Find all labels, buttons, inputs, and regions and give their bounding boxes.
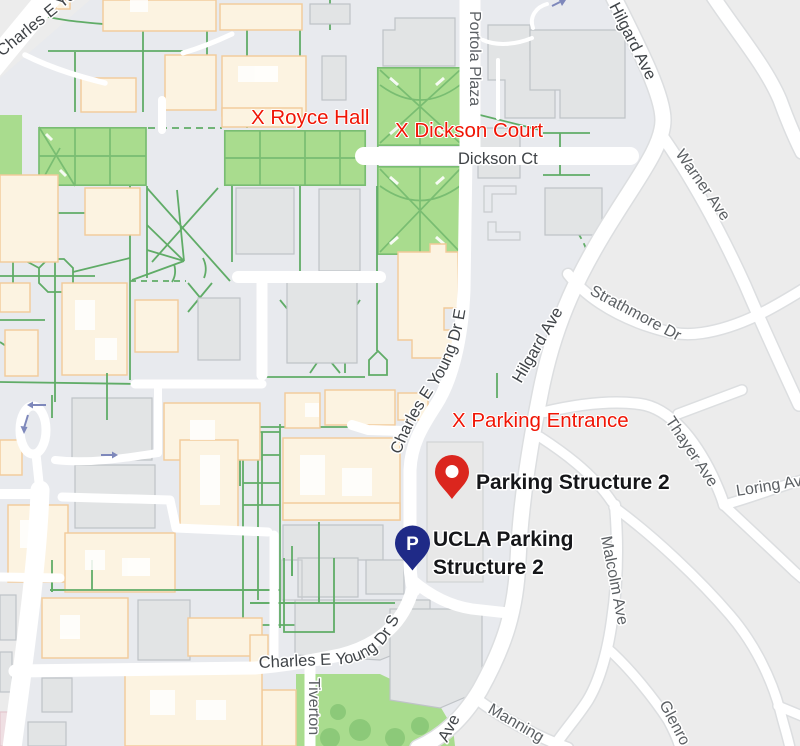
svg-text:Parking Structure 2: Parking Structure 2 [476, 471, 670, 494]
svg-text:X Dickson Court: X Dickson Court [395, 119, 543, 142]
svg-text:X Royce Hall: X Royce Hall [251, 106, 370, 129]
svg-text:Tiverton: Tiverton [305, 678, 322, 735]
svg-text:Portola Plaza: Portola Plaza [466, 11, 483, 106]
svg-text:X Parking Entrance: X Parking Entrance [452, 409, 629, 432]
svg-text:UCLA Parking: UCLA Parking [433, 528, 573, 551]
svg-text:Structure 2: Structure 2 [433, 556, 544, 579]
svg-text:P: P [406, 534, 419, 555]
svg-text:Dickson Ct: Dickson Ct [458, 150, 538, 168]
